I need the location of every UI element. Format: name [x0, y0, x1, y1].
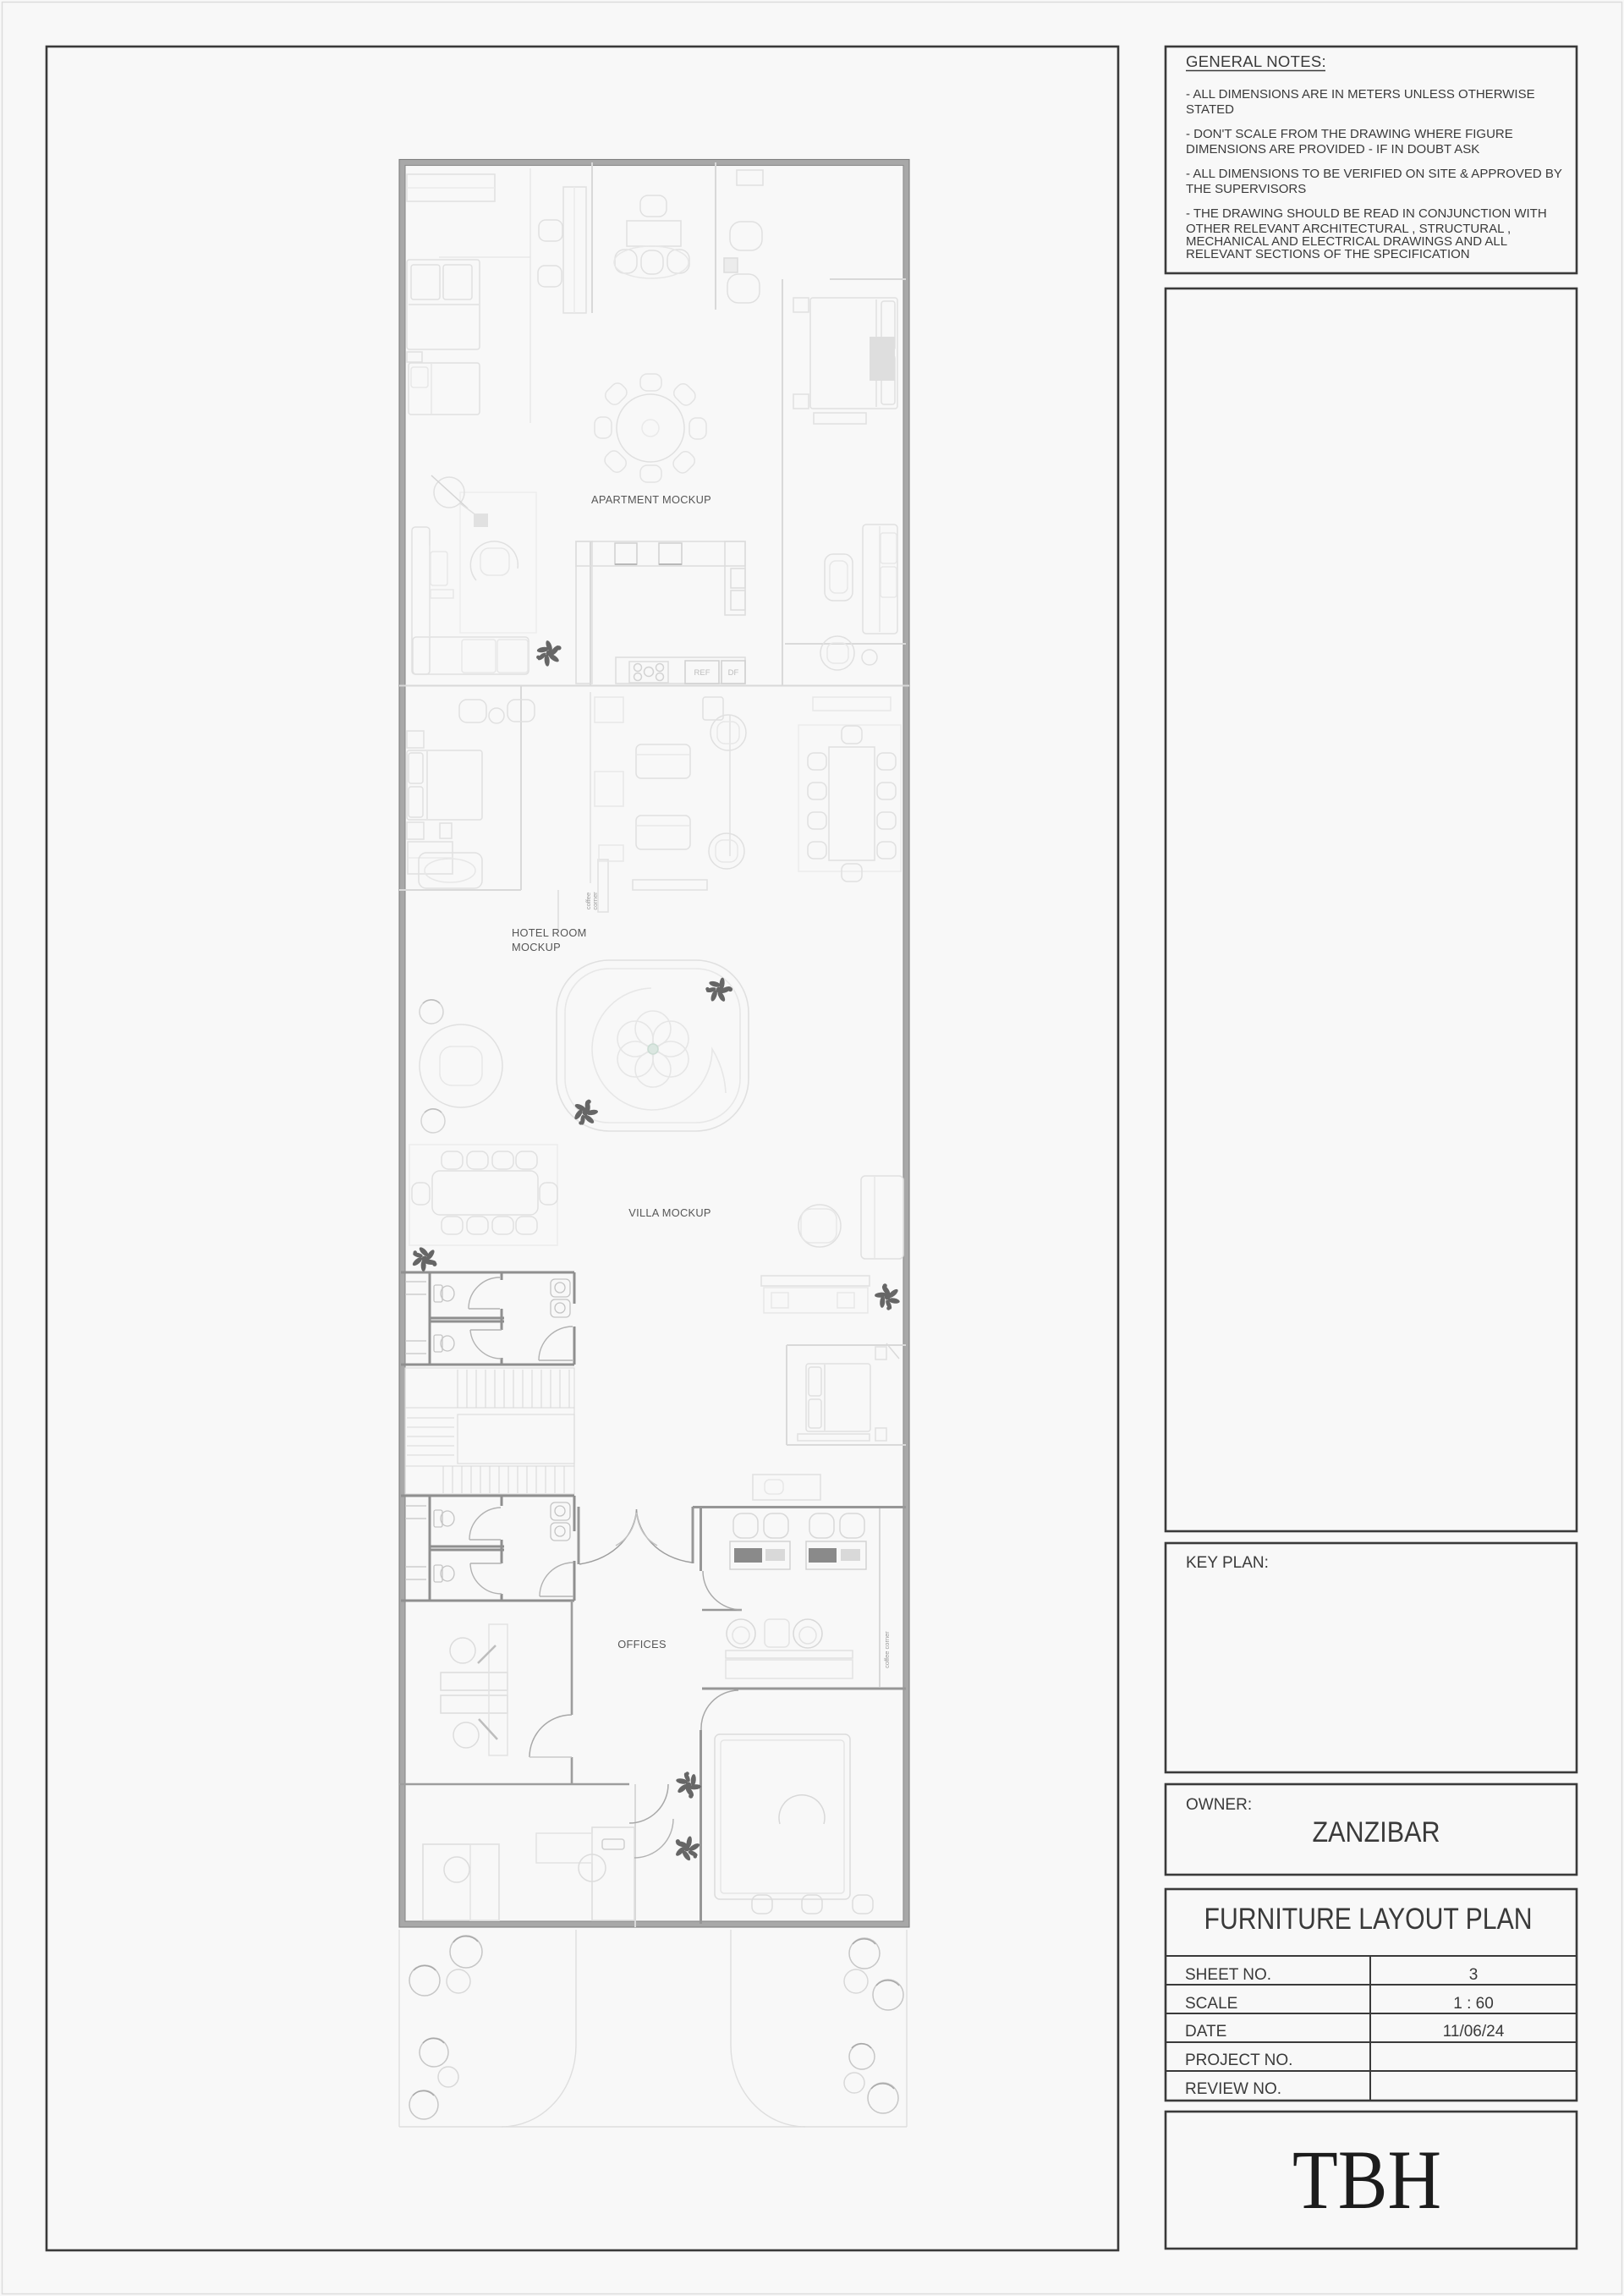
svg-text:- ALL DIMENSIONS ARE IN METERS: - ALL DIMENSIONS ARE IN METERS UNLESS OT…	[1186, 87, 1535, 102]
svg-text:GENERAL NOTES:: GENERAL NOTES:	[1186, 52, 1326, 70]
svg-text:THE SUPERVISORS: THE SUPERVISORS	[1186, 182, 1306, 196]
svg-text:- DON'T SCALE FROM THE DRAWING: - DON'T SCALE FROM THE DRAWING WHERE FIG…	[1186, 127, 1513, 141]
svg-text:OWNER:: OWNER:	[1186, 1796, 1252, 1814]
svg-text:3: 3	[1469, 1966, 1479, 1984]
svg-text:11/06/24: 11/06/24	[1443, 2023, 1505, 2041]
svg-text:VILLA MOCKUP: VILLA MOCKUP	[628, 1206, 710, 1219]
svg-text:coffee corner: coffee corner	[883, 1631, 891, 1668]
svg-text:DF: DF	[728, 668, 739, 678]
svg-text:TBH: TBH	[1292, 2133, 1441, 2227]
svg-text:ZANZIBAR: ZANZIBAR	[1313, 1816, 1440, 1848]
svg-text:REF: REF	[694, 668, 710, 678]
svg-text:- THE DRAWING SHOULD BE READ I: - THE DRAWING SHOULD BE READ IN CONJUNCT…	[1186, 206, 1547, 221]
svg-text:DATE: DATE	[1185, 2023, 1226, 2041]
svg-text:KEY PLAN:: KEY PLAN:	[1186, 1554, 1269, 1572]
svg-text:REVIEW NO.: REVIEW NO.	[1185, 2080, 1281, 2098]
svg-text:MOCKUP: MOCKUP	[512, 941, 561, 953]
svg-text:PROJECT NO.: PROJECT NO.	[1185, 2052, 1292, 2069]
svg-text:corner: corner	[591, 892, 599, 910]
svg-text:DIMENSIONS ARE PROVIDED - IF: DIMENSIONS ARE PROVIDED - IF IN DOUBT AS…	[1186, 142, 1479, 157]
svg-text:- ALL DIMENSIONS TO BE VERIFIE: - ALL DIMENSIONS TO BE VERIFIED ON SITE …	[1186, 167, 1562, 181]
svg-text:FURNITURE LAYOUT PLAN: FURNITURE LAYOUT PLAN	[1204, 1903, 1533, 1936]
svg-text:HOTEL ROOM: HOTEL ROOM	[512, 926, 587, 939]
svg-text:SCALE: SCALE	[1185, 1995, 1237, 2013]
svg-text:APARTMENT MOCKUP: APARTMENT MOCKUP	[591, 493, 711, 506]
svg-text:STATED: STATED	[1186, 102, 1234, 117]
svg-text:RELEVANT SECTIONS OF THE SPECI: RELEVANT SECTIONS OF THE SPECIFICATION	[1186, 247, 1470, 261]
svg-text:SHEET NO.: SHEET NO.	[1185, 1966, 1271, 1984]
svg-text:1 : 60: 1 : 60	[1453, 1995, 1494, 2013]
svg-text:OFFICES: OFFICES	[617, 1638, 667, 1651]
